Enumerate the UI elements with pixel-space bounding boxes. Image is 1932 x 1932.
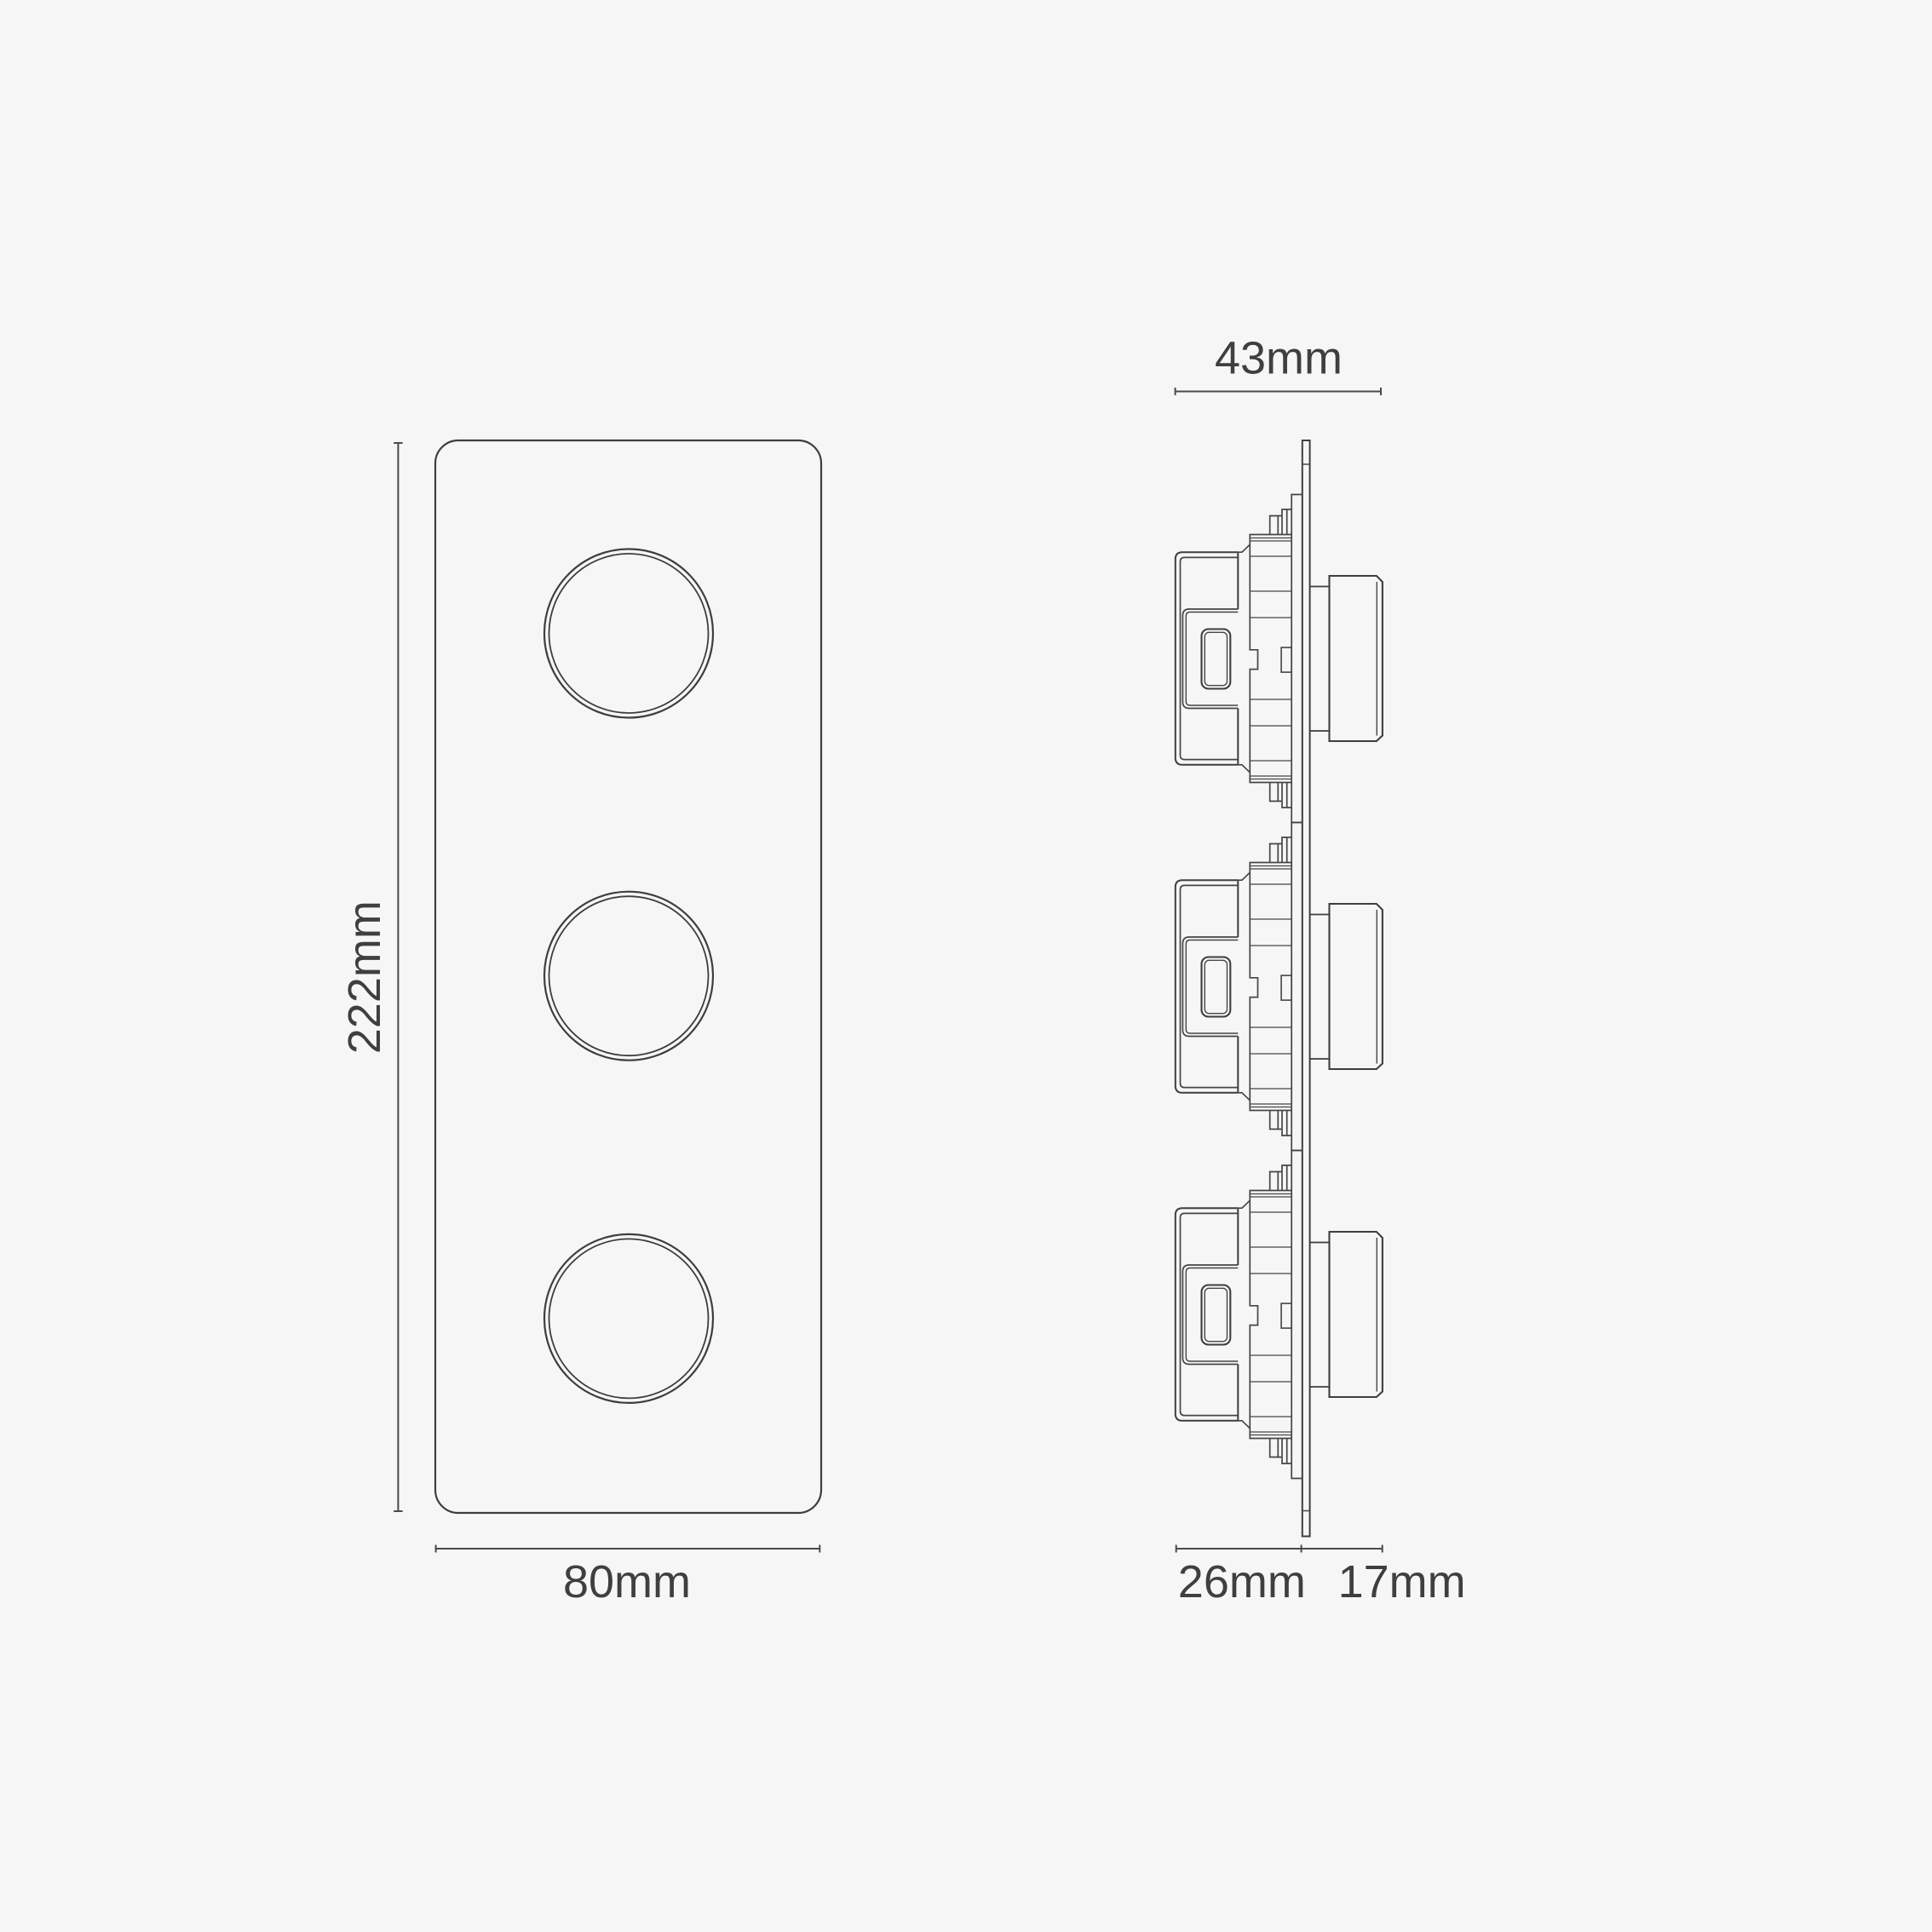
svg-text:80mm: 80mm xyxy=(563,1556,691,1607)
svg-text:43mm: 43mm xyxy=(1215,333,1343,384)
svg-text:17mm: 17mm xyxy=(1338,1556,1466,1607)
svg-text:222mm: 222mm xyxy=(339,900,390,1054)
svg-text:26mm: 26mm xyxy=(1178,1556,1306,1607)
